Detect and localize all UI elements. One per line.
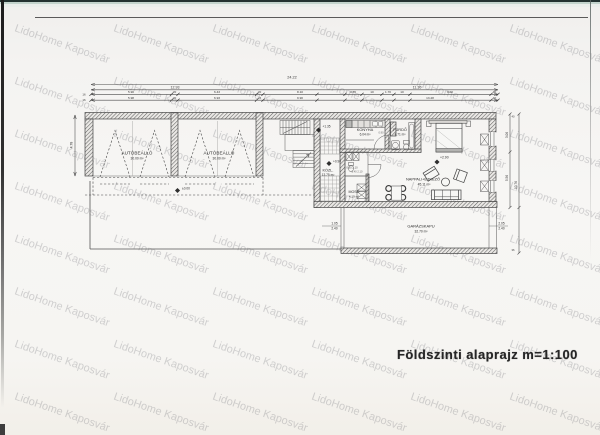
svg-text:LidoHome Kaposvár: LidoHome Kaposvár [508, 128, 600, 172]
svg-text:40: 40 [512, 115, 515, 119]
svg-text:13.48: 13.48 [426, 96, 434, 100]
svg-text:40: 40 [493, 96, 497, 100]
svg-text:6.04 m²: 6.04 m² [360, 133, 371, 137]
svg-text:10: 10 [370, 90, 374, 94]
svg-text:LidoHome Kaposvár: LidoHome Kaposvár [13, 180, 111, 224]
svg-text:FÜRDŐ: FÜRDŐ [393, 127, 407, 132]
svg-text:KONYHA: KONYHA [357, 127, 374, 132]
svg-text:8.10: 8.10 [297, 90, 303, 94]
svg-text:LidoHome Kaposvár: LidoHome Kaposvár [112, 180, 210, 224]
svg-text:LidoHome Kaposvár: LidoHome Kaposvár [508, 285, 600, 329]
svg-text:2.40: 2.40 [498, 227, 504, 231]
svg-text:26: 26 [258, 96, 262, 100]
svg-text:5.98: 5.98 [128, 96, 134, 100]
svg-text:LidoHome Kaposvár: LidoHome Kaposvár [508, 75, 600, 119]
svg-text:2.05: 2.05 [498, 222, 504, 226]
svg-text:LidoHome Kaposvár: LidoHome Kaposvár [13, 338, 111, 382]
svg-text:±0.00: ±0.00 [182, 187, 190, 191]
svg-text:LidoHome Kaposvár: LidoHome Kaposvár [211, 285, 309, 329]
svg-text:9.90: 9.90 [297, 96, 303, 100]
svg-text:16: 16 [82, 92, 86, 96]
svg-text:LidoHome Kaposvár: LidoHome Kaposvár [211, 22, 309, 66]
svg-text:AUTÓBEÁLLÓ: AUTÓBEÁLLÓ [203, 150, 234, 156]
svg-text:36: 36 [512, 248, 515, 252]
svg-text:4.19 m²: 4.19 m² [349, 194, 359, 198]
svg-text:LidoHome Kaposvár: LidoHome Kaposvár [409, 285, 507, 329]
svg-text:LidoHome Kaposvár: LidoHome Kaposvár [13, 233, 111, 277]
svg-text:45.11 m²: 45.11 m² [418, 183, 432, 187]
svg-text:32.70 m²: 32.70 m² [414, 230, 428, 234]
svg-text:LidoHome Kaposvár: LidoHome Kaposvár [310, 391, 408, 435]
svg-text:13.75 m²: 13.75 m² [322, 173, 335, 177]
svg-text:40: 40 [493, 90, 497, 94]
svg-text:3.06: 3.06 [505, 132, 509, 138]
svg-text:LidoHome Kaposvár: LidoHome Kaposvár [409, 233, 507, 277]
svg-text:0.90: 0.90 [378, 131, 384, 135]
svg-text:30.00 m²: 30.00 m² [130, 157, 144, 161]
svg-text:LidoHome Kaposvár: LidoHome Kaposvár [409, 22, 507, 66]
svg-text:+1.35: +1.35 [323, 125, 331, 129]
svg-text:9.02: 9.02 [447, 90, 453, 94]
svg-text:LidoHome Kaposvár: LidoHome Kaposvár [508, 233, 600, 277]
svg-text:+2.90: +2.90 [440, 156, 449, 160]
svg-text:LidoHome Kaposvár: LidoHome Kaposvár [211, 180, 309, 224]
svg-text:3.55: 3.55 [350, 90, 356, 94]
svg-text:GARÁZSKAPU: GARÁZSKAPU [407, 224, 434, 229]
svg-text:KÖZL.: KÖZL. [323, 169, 334, 173]
svg-text:10.76: 10.76 [514, 181, 518, 189]
svg-text:LidoHome Kaposvár: LidoHome Kaposvár [310, 338, 408, 382]
svg-text:LidoHome Kaposvár: LidoHome Kaposvár [211, 338, 309, 382]
svg-text:0.90 2.10: 0.90 2.10 [346, 166, 358, 170]
svg-text:6.93: 6.93 [214, 96, 220, 100]
svg-text:LidoHome Kaposvár: LidoHome Kaposvár [508, 391, 600, 435]
svg-text:LidoHome Kaposvár: LidoHome Kaposvár [13, 128, 111, 172]
svg-text:LidoHome Kaposvár: LidoHome Kaposvár [409, 391, 507, 435]
svg-text:30.00 m²: 30.00 m² [212, 157, 226, 161]
svg-text:LidoHome Kaposvár: LidoHome Kaposvár [211, 233, 309, 277]
svg-text:20: 20 [173, 90, 177, 94]
svg-text:LidoHome Kaposvár: LidoHome Kaposvár [211, 391, 309, 435]
svg-text:LidoHome Kaposvár: LidoHome Kaposvár [112, 22, 210, 66]
svg-text:LidoHome Kaposvár: LidoHome Kaposvár [508, 180, 600, 224]
svg-text:LidoHome Kaposvár: LidoHome Kaposvár [310, 285, 408, 329]
svg-text:LidoHome Kaposvár: LidoHome Kaposvár [310, 233, 408, 277]
svg-text:LidoHome Kaposvár: LidoHome Kaposvár [112, 285, 210, 329]
svg-text:AUTÓBEÁLLÓ: AUTÓBEÁLLÓ [121, 150, 152, 156]
svg-text:1.70: 1.70 [385, 90, 391, 94]
svg-text:2.40 2.10: 2.40 2.10 [352, 170, 363, 174]
svg-text:5.56: 5.56 [505, 175, 509, 181]
svg-text:LidoHome Kaposvár: LidoHome Kaposvár [13, 391, 111, 435]
svg-text:LidoHome Kaposvár: LidoHome Kaposvár [112, 338, 210, 382]
svg-text:LidoHome Kaposvár: LidoHome Kaposvár [310, 22, 408, 66]
svg-text:5.90: 5.90 [128, 90, 134, 94]
svg-text:2.40: 2.40 [331, 227, 337, 231]
svg-text:LidoHome Kaposvár: LidoHome Kaposvár [508, 22, 600, 66]
svg-text:LidoHome Kaposvár: LidoHome Kaposvár [13, 285, 111, 329]
svg-text:6.43: 6.43 [214, 90, 220, 94]
svg-text:16: 16 [82, 98, 86, 102]
svg-text:11.30: 11.30 [413, 85, 422, 89]
svg-text:NAPPALI+ÉTKEZŐ: NAPPALI+ÉTKEZŐ [406, 177, 440, 182]
svg-text:+0.90: +0.90 [333, 160, 341, 164]
svg-text:20: 20 [258, 90, 262, 94]
svg-text:LidoHome Kaposvár: LidoHome Kaposvár [13, 22, 111, 66]
svg-text:LidoHome Kaposvár: LidoHome Kaposvár [112, 391, 210, 435]
svg-text:12.93: 12.93 [171, 86, 180, 90]
svg-text:LidoHome Kaposvár: LidoHome Kaposvár [112, 233, 210, 277]
svg-text:24.22: 24.22 [287, 76, 297, 80]
svg-text:1.05: 1.05 [331, 222, 337, 226]
svg-text:20: 20 [173, 96, 177, 100]
svg-text:4.71 m²: 4.71 m² [395, 133, 406, 137]
svg-text:4.78: 4.78 [70, 142, 74, 149]
svg-text:10: 10 [400, 90, 404, 94]
svg-text:MOSÓ: MOSÓ [349, 189, 360, 194]
